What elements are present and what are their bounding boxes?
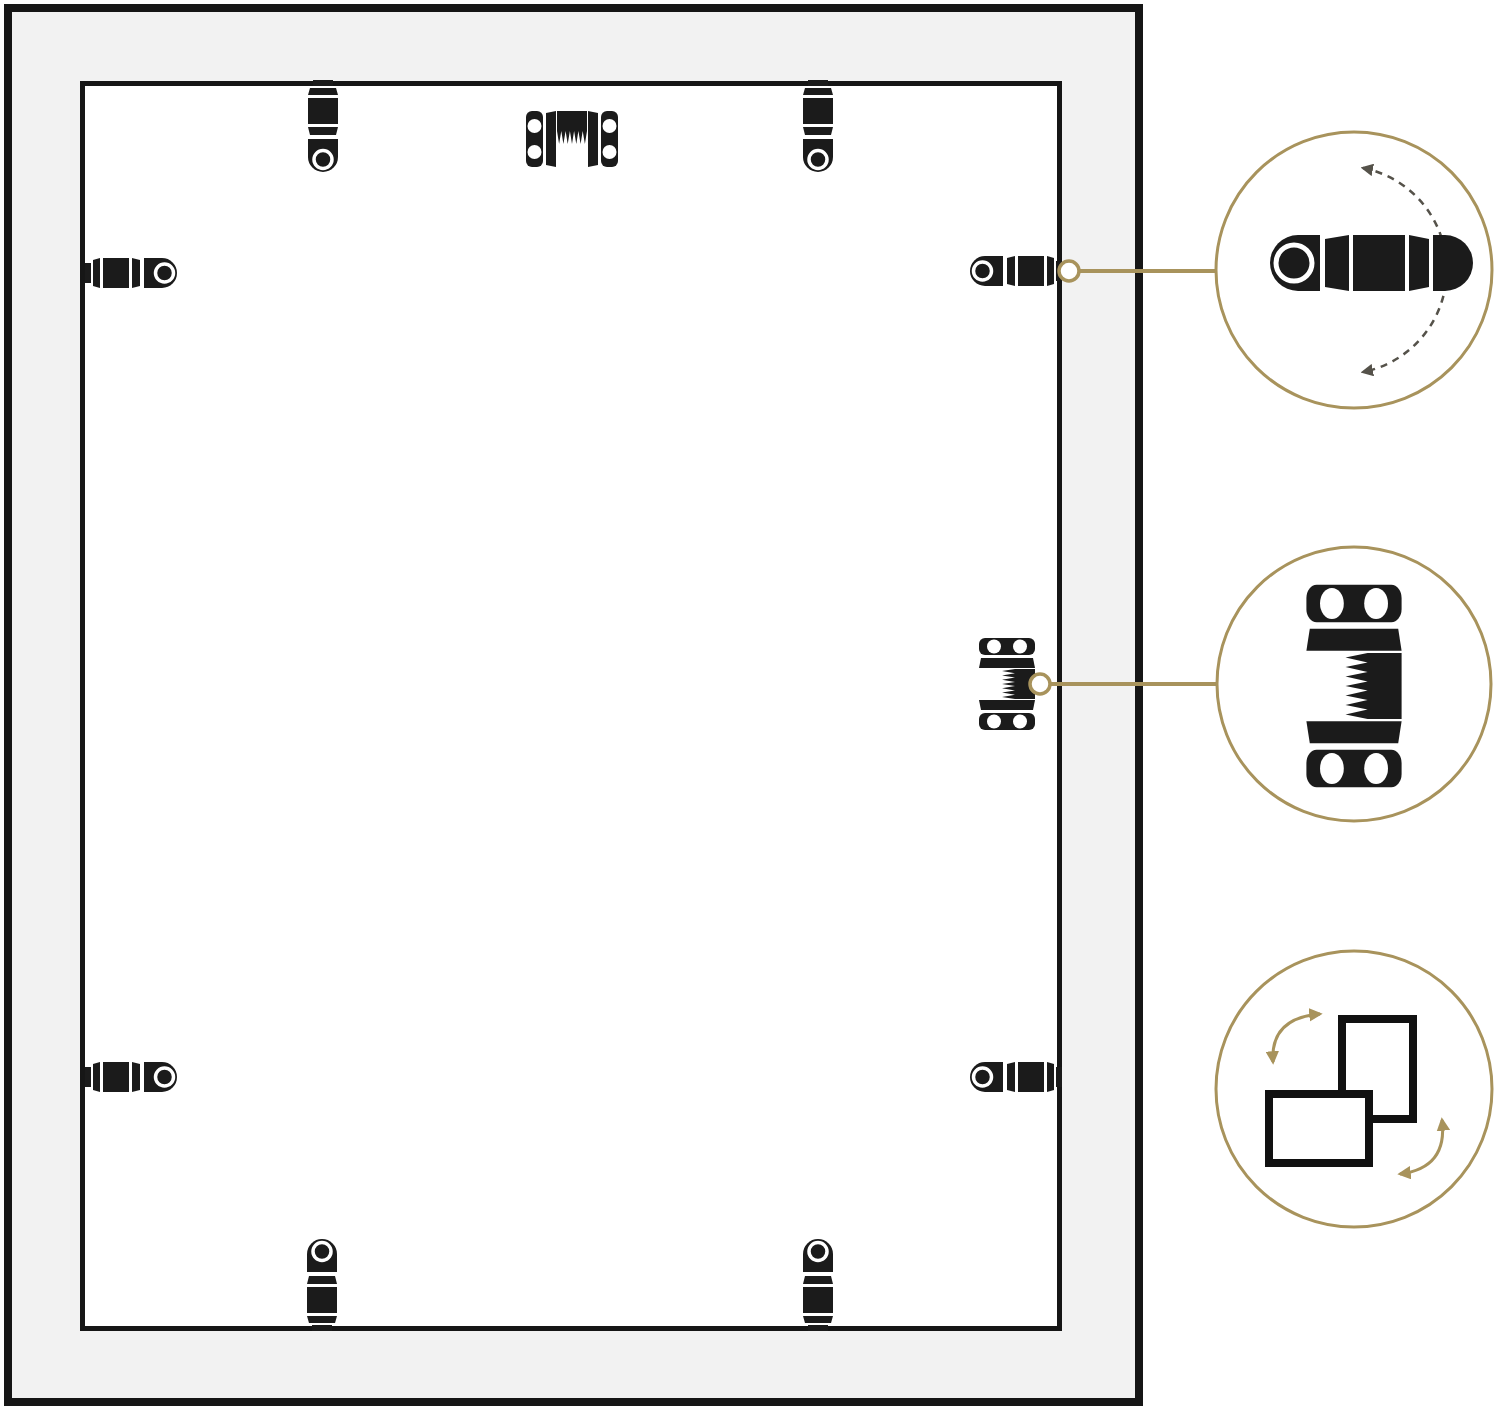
turn-button-right-lower	[970, 1062, 1062, 1092]
back-panel-hardware	[85, 80, 1062, 1331]
callout-spring-clip	[1217, 547, 1491, 821]
callout-orientation	[1216, 951, 1492, 1227]
turn-button-top-left	[308, 80, 338, 172]
callout-anchor-dot-spring-clip	[1030, 674, 1050, 694]
turn-button-left-lower	[85, 1062, 177, 1092]
turn-button-bottom-right	[803, 1239, 833, 1331]
callout-turn-button-rotation	[1216, 132, 1492, 408]
turn-button-bottom-left	[307, 1239, 337, 1331]
callout-connectors	[1030, 261, 1222, 694]
turn-button-right-upper	[970, 256, 1062, 286]
product-diagram-frame-back	[0, 0, 1500, 1413]
turn-button-top-right	[803, 80, 833, 172]
turn-button-rotate-icon	[1270, 235, 1473, 291]
hardware-overlay	[0, 0, 1500, 1413]
spring-clip-top-center	[526, 111, 618, 167]
spring-clip-right-middle	[979, 638, 1035, 730]
turn-button-left-upper	[85, 258, 177, 288]
landscape-frame-glyph	[1269, 1094, 1369, 1163]
callout-anchor-dot-turn-button	[1059, 261, 1079, 281]
